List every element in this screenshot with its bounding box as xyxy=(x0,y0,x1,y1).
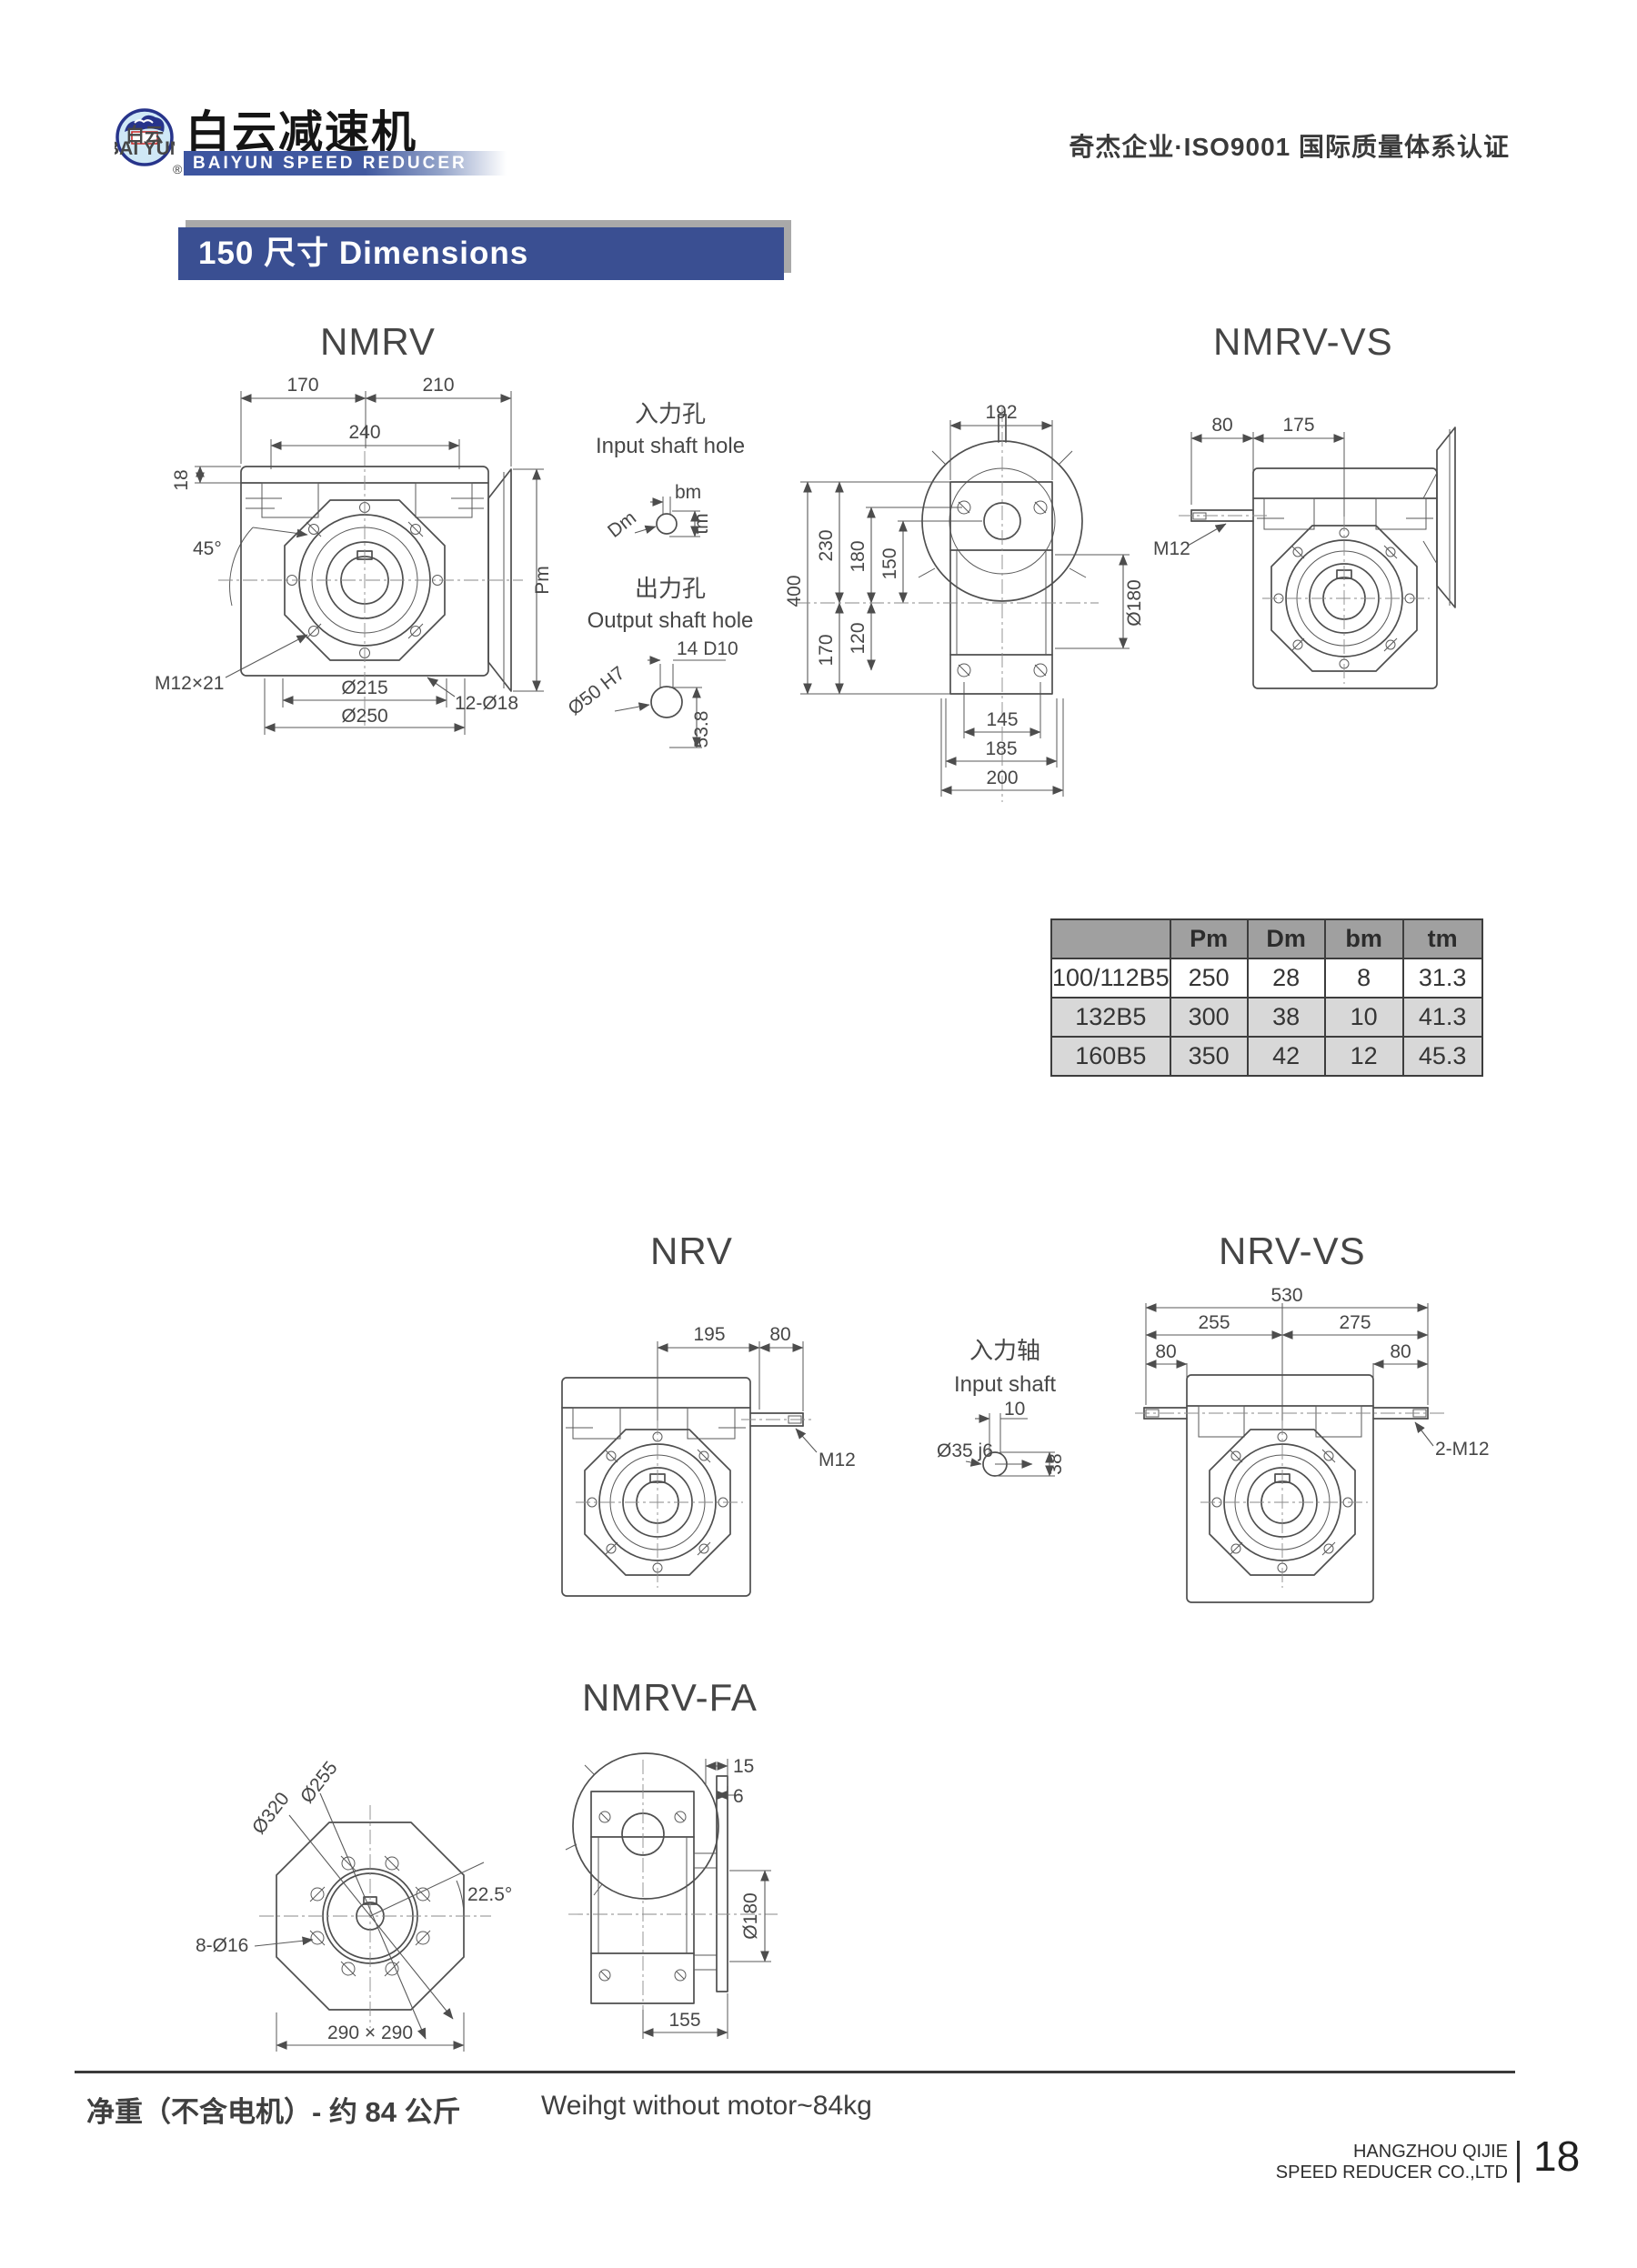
table-header-cell xyxy=(1051,919,1170,958)
dim-label: 195 xyxy=(693,1324,725,1345)
dim-label: M12×21 xyxy=(155,673,224,694)
footer-divider-rule xyxy=(75,2071,1515,2073)
fa-side-geometry xyxy=(566,1753,778,2019)
dimension-table: Pm Dm bm tm 100/112B5 250 28 8 31.3 132B… xyxy=(1050,918,1483,1077)
nmrv-fa-flange-drawing: Ø255 Ø320 22.5° 8-Ø16 290 × 290 xyxy=(146,1728,600,2082)
nmrv-fa-title: NMRV-FA xyxy=(582,1676,758,1720)
nmrv-dim-labels: 170 210 240 18 45° M12×21 Ø215 Ø250 12-Ø… xyxy=(155,375,553,727)
output-hole-title-cn: 出力孔 xyxy=(635,575,706,602)
nrv-vs-title: NRV-VS xyxy=(1219,1229,1366,1273)
company-line-2: SPEED REDUCER CO.,LTD xyxy=(1276,2163,1508,2183)
input-shaft-title-cn: 入力轴 xyxy=(969,1337,1040,1364)
dim-label: 53.8 xyxy=(691,711,712,748)
dim-label: Ø50 H7 xyxy=(564,663,628,720)
table-header-cell: tm xyxy=(1403,919,1482,958)
input-hole-title-en: Input shaft hole xyxy=(596,434,745,458)
section-title: 150 尺寸 Dimensions xyxy=(198,236,528,271)
table-cell: 160B5 xyxy=(1051,1037,1170,1076)
dim-label: 45° xyxy=(193,538,222,559)
dim-label: bm xyxy=(675,482,701,503)
dim-label: 170 xyxy=(286,375,318,396)
weight-note-cn: 净重（不含电机）- 约 84 公斤 xyxy=(86,2089,461,2130)
input-hole-title-cn: 入力孔 xyxy=(635,400,706,427)
nmrv-fa-side-drawing: 15 6 Ø180 155 xyxy=(564,1746,873,2046)
dim-label: 18 xyxy=(171,469,192,490)
section-title-bar: 150 尺寸 Dimensions xyxy=(178,227,784,280)
registered-mark: ® xyxy=(173,162,182,176)
dim-label: 210 xyxy=(422,375,454,396)
table-cell: 250 xyxy=(1170,958,1248,998)
nmrv-vs-title: NMRV-VS xyxy=(1213,320,1393,364)
nrv-dim-labels: 195 80 M12 xyxy=(693,1324,855,1470)
dim-label: 170 xyxy=(816,634,837,666)
fa-flange-geometry xyxy=(259,1805,491,2028)
dim-label: 15 xyxy=(733,1756,754,1777)
table-cell: 10 xyxy=(1325,998,1403,1037)
dim-label: 80 xyxy=(1390,1341,1411,1362)
dim-label: 175 xyxy=(1282,415,1314,436)
table-cell: 28 xyxy=(1248,958,1325,998)
side-view-geometry xyxy=(796,407,1099,802)
output-hole-title-en: Output shaft hole xyxy=(588,608,754,633)
side-view-dimension-lines xyxy=(800,420,1130,797)
dim-label: 530 xyxy=(1270,1285,1302,1306)
dim-label: 10 xyxy=(1004,1399,1025,1420)
nmrv-vs-dim-labels: 80 175 M12 xyxy=(1153,415,1315,559)
fa-side-dim-labels: 15 6 Ø180 155 xyxy=(668,1756,761,2031)
table-cell: 41.3 xyxy=(1403,998,1482,1037)
dim-label: 80 xyxy=(1155,1341,1176,1362)
fa-flange-dim-labels: Ø255 Ø320 22.5° 8-Ø16 290 × 290 xyxy=(196,1758,512,2043)
dim-label: 8-Ø16 xyxy=(196,1935,248,1956)
nmrv-vs-geometry xyxy=(1179,427,1455,688)
shaft-holes-drawing: 入力孔 Input shaft hole bm Dm tm 出力孔 Output… xyxy=(573,391,773,773)
nmrv-side-view-drawing: 192 400 230 180 150 120 170 Ø180 145 185… xyxy=(782,382,1173,809)
company-line-1: HANGZHOU QIJIE xyxy=(1276,2142,1508,2163)
dim-label: 155 xyxy=(668,2010,700,2031)
nmrv-title: NMRV xyxy=(320,320,436,364)
table-row: 100/112B5 250 28 8 31.3 xyxy=(1051,958,1482,998)
dim-label: 38 xyxy=(1045,1453,1066,1474)
dim-label: 240 xyxy=(348,422,380,443)
weight-note-en: Weihgt without motor~84kg xyxy=(541,2091,872,2122)
nrv-vs-dim-labels: 530 255 275 80 80 2-M12 xyxy=(1155,1285,1489,1460)
nrv-title: NRV xyxy=(650,1229,733,1273)
table-cell: 31.3 xyxy=(1403,958,1482,998)
footer-vertical-divider xyxy=(1517,2141,1520,2183)
nmrv-vs-drawing: 80 175 M12 xyxy=(1146,382,1546,737)
dim-label: Ø180 xyxy=(740,1892,761,1939)
table-cell: 300 xyxy=(1170,998,1248,1037)
dim-label: 275 xyxy=(1339,1312,1371,1333)
table-cell: 12 xyxy=(1325,1037,1403,1076)
dim-label: 80 xyxy=(1211,415,1232,436)
badge-en-label: BAI YUN xyxy=(115,138,175,159)
nmrv-vs-dimension-lines xyxy=(1188,432,1344,546)
brand-logo-icon: 白云 BAI YUN xyxy=(115,107,175,167)
company-name: HANGZHOU QIJIE SPEED REDUCER CO.,LTD xyxy=(1276,2142,1508,2183)
shaft-hole-labels: 入力孔 Input shaft hole bm Dm tm 出力孔 Output… xyxy=(564,400,753,748)
table-header-cell: Pm xyxy=(1170,919,1248,958)
brand-name-en-bar: BAIYUN SPEED REDUCER xyxy=(184,151,513,176)
dim-label: 400 xyxy=(784,575,805,607)
nrv-dimension-lines xyxy=(658,1341,817,1452)
nmrv-front-drawing: 170 210 240 18 45° M12×21 Ø215 Ø250 12-Ø… xyxy=(155,362,555,744)
dim-label: 200 xyxy=(986,768,1018,788)
dim-label: 255 xyxy=(1198,1312,1230,1333)
dim-label: Ø255 xyxy=(296,1758,342,1808)
nrv-vs-drawing: 530 255 275 80 80 2-M12 xyxy=(1128,1273,1528,1628)
page-number: 18 xyxy=(1533,2132,1580,2181)
dim-label: 120 xyxy=(848,622,869,654)
input-shaft-title-en: Input shaft xyxy=(954,1372,1056,1397)
dim-label: 185 xyxy=(985,738,1017,759)
dim-label: M12 xyxy=(1153,538,1190,559)
dim-label: M12 xyxy=(818,1450,856,1470)
table-cell: 42 xyxy=(1248,1037,1325,1076)
dim-label: 230 xyxy=(816,529,837,561)
dim-label: 80 xyxy=(769,1324,790,1345)
table-cell: 45.3 xyxy=(1403,1037,1482,1076)
nrv-vs-geometry xyxy=(1135,1375,1446,1602)
dim-label: Ø215 xyxy=(341,677,387,698)
dim-label: Ø180 xyxy=(1124,579,1145,626)
table-row: 160B5 350 42 12 45.3 xyxy=(1051,1037,1482,1076)
table-cell: 38 xyxy=(1248,998,1325,1037)
nrv-drawing: 195 80 M12 xyxy=(537,1291,937,1646)
fa-flange-dimension-lines xyxy=(255,1793,484,2052)
dim-label: Ø250 xyxy=(341,706,387,727)
table-row: 132B5 300 38 10 41.3 xyxy=(1051,998,1482,1037)
dim-label: 14 D10 xyxy=(677,638,738,659)
table-cell: 100/112B5 xyxy=(1051,958,1170,998)
brand-name-en: BAIYUN SPEED REDUCER xyxy=(193,154,467,173)
certification-text: 奇杰企业·ISO9001 国际质量体系认证 xyxy=(1069,127,1510,164)
dim-label: Dm xyxy=(604,507,640,542)
dim-label: Pm xyxy=(532,566,553,595)
dim-label: 145 xyxy=(986,709,1018,730)
dim-label: 192 xyxy=(985,402,1017,423)
table-cell: 132B5 xyxy=(1051,998,1170,1037)
dim-label: 2-M12 xyxy=(1435,1439,1490,1460)
dim-label: 290 × 290 xyxy=(327,2022,413,2043)
table-header-cell: bm xyxy=(1325,919,1403,958)
dim-label: 22.5° xyxy=(467,1884,512,1905)
dim-label: Ø320 xyxy=(248,1789,294,1839)
dim-label: 180 xyxy=(848,540,869,572)
table-cell: 8 xyxy=(1325,958,1403,998)
dim-label: 6 xyxy=(733,1786,744,1807)
table-header-cell: Dm xyxy=(1248,919,1325,958)
table-cell: 350 xyxy=(1170,1037,1248,1076)
dim-label: 12-Ø18 xyxy=(455,693,518,714)
dim-label: 150 xyxy=(879,547,900,579)
table-header-row: Pm Dm bm tm xyxy=(1051,919,1482,958)
nrv-geometry xyxy=(562,1378,814,1596)
